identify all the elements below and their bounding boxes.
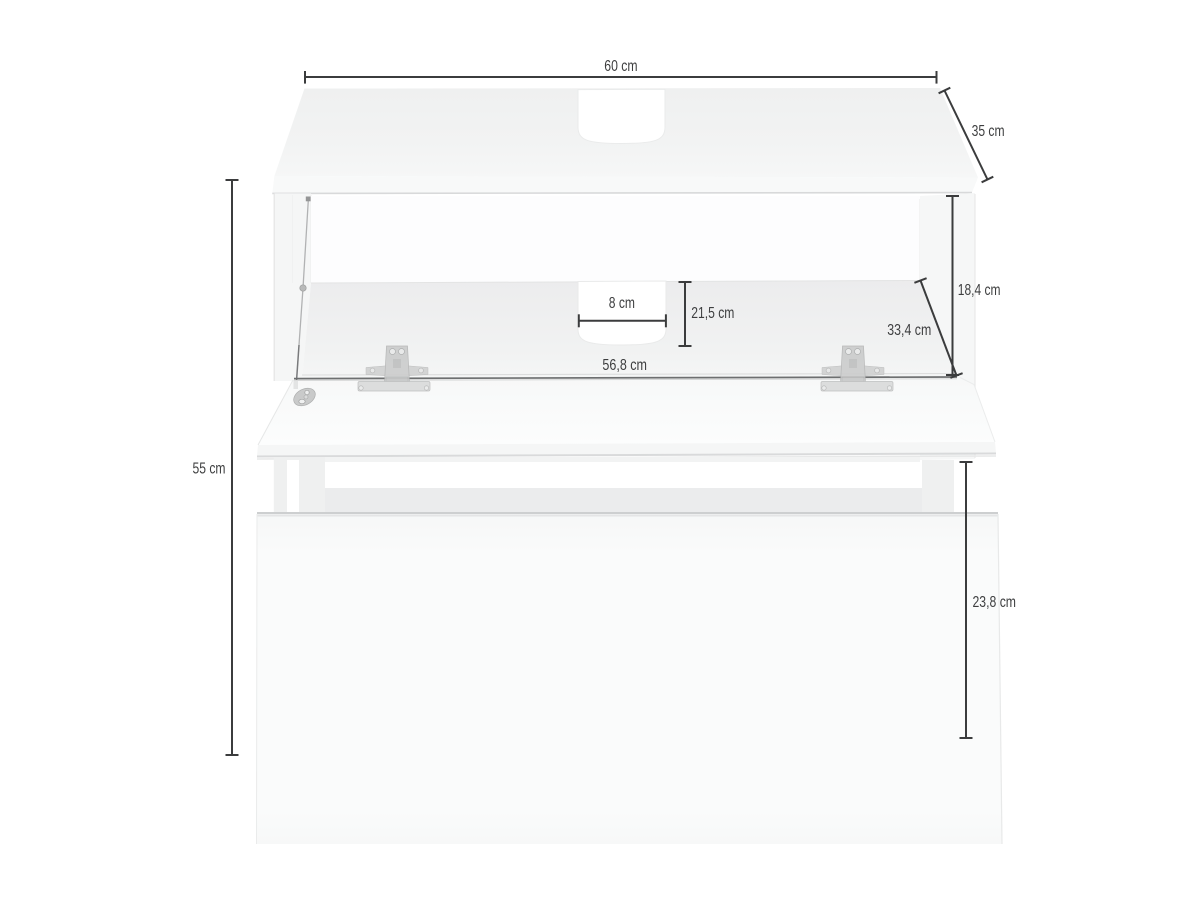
svg-text:23,8 cm: 23,8 cm bbox=[973, 594, 1017, 611]
svg-text:8 cm: 8 cm bbox=[609, 295, 635, 312]
svg-text:21,5 cm: 21,5 cm bbox=[691, 305, 734, 322]
svg-text:56,8 cm: 56,8 cm bbox=[602, 357, 647, 374]
svg-text:18,4 cm: 18,4 cm bbox=[958, 282, 1001, 299]
svg-text:33,4 cm: 33,4 cm bbox=[887, 322, 931, 339]
svg-text:60 cm: 60 cm bbox=[604, 58, 637, 75]
svg-text:35 cm: 35 cm bbox=[972, 123, 1005, 140]
svg-text:55 cm: 55 cm bbox=[193, 460, 226, 477]
